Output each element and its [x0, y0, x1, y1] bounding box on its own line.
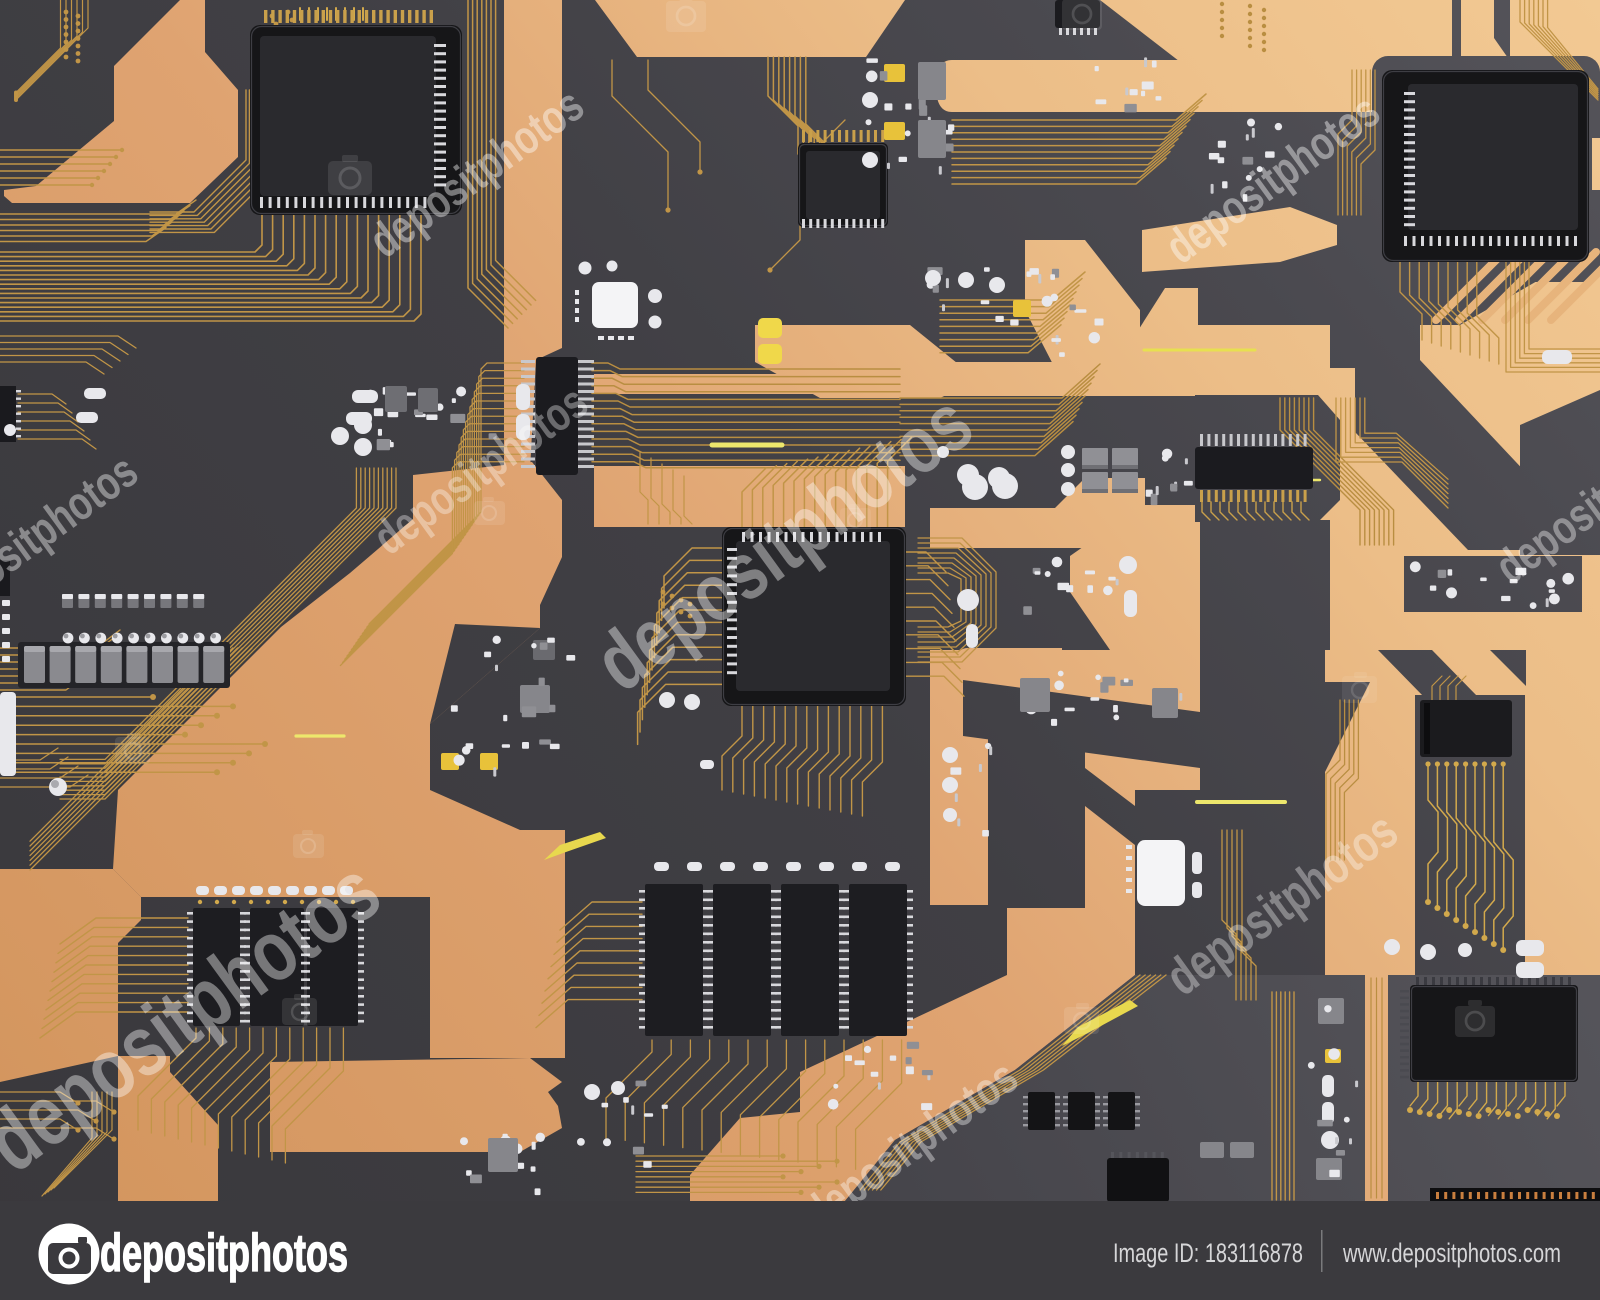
svg-text:www.depositphotos.com: www.depositphotos.com [1342, 1238, 1561, 1268]
svg-text:Image ID: 183116878: Image ID: 183116878 [1113, 1238, 1303, 1268]
svg-text:depositphotos: depositphotos [100, 1224, 348, 1283]
